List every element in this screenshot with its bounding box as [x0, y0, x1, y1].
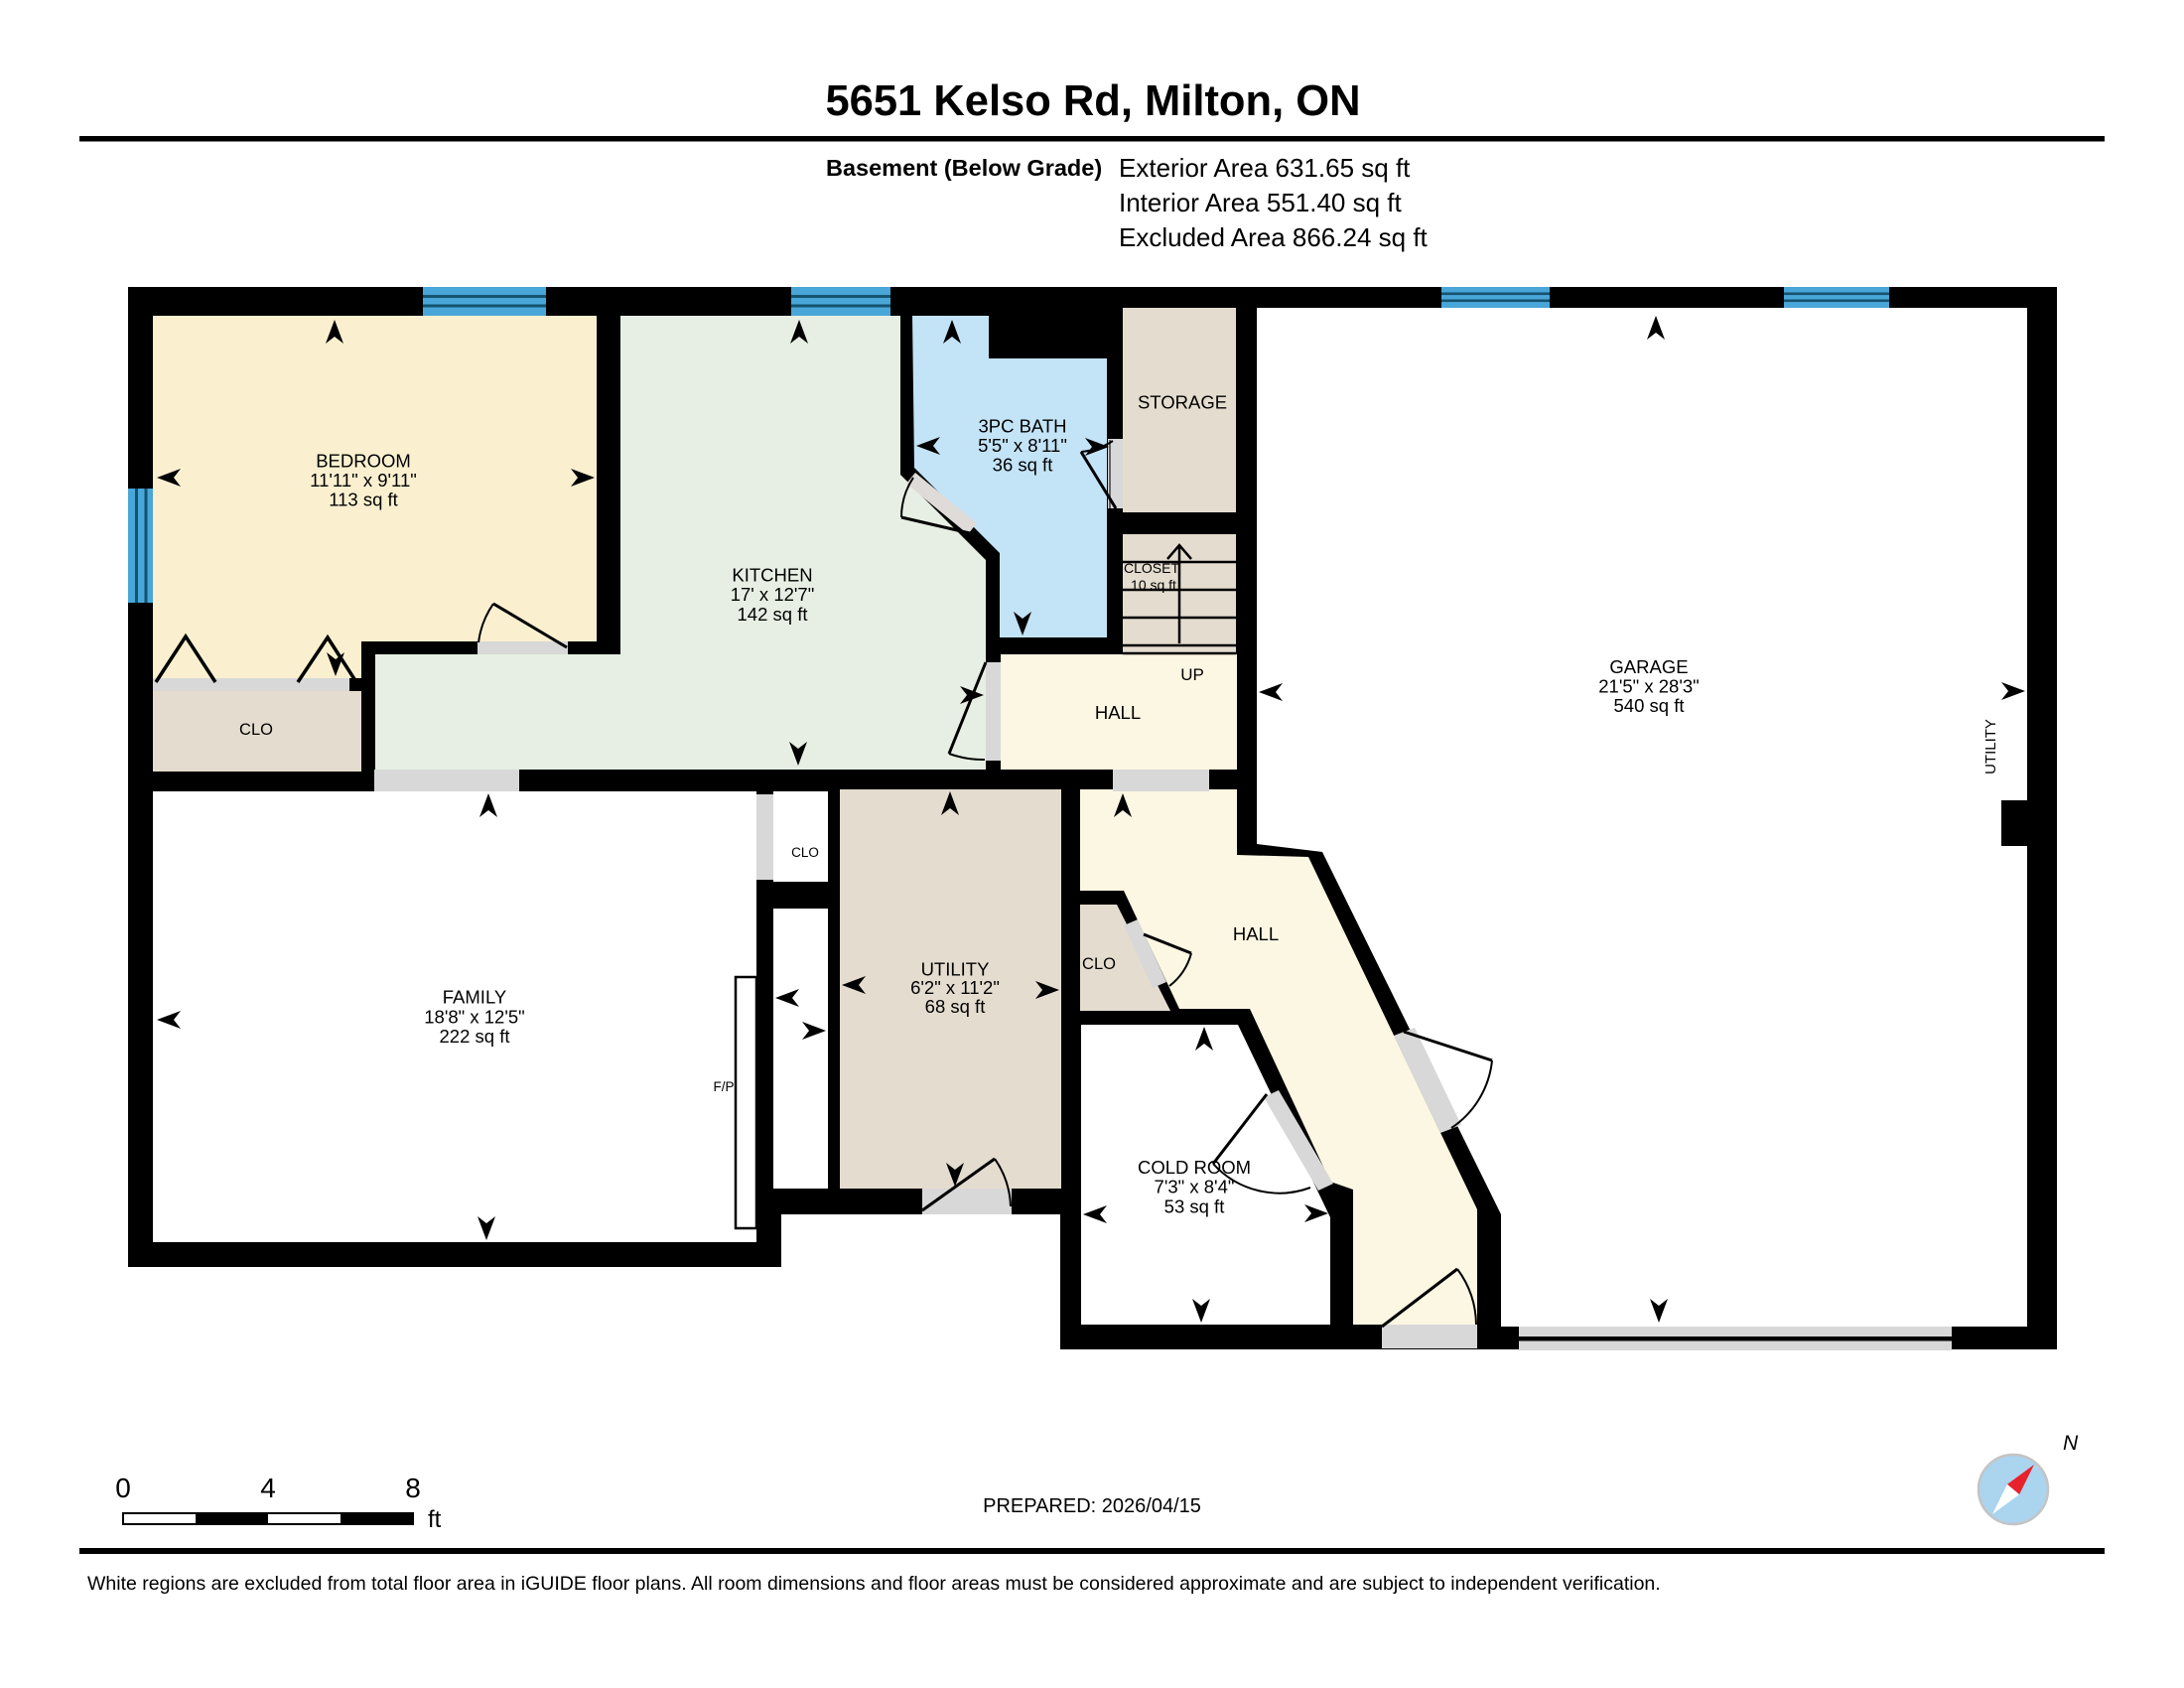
- svg-text:53 sq ft: 53 sq ft: [1164, 1196, 1225, 1216]
- svg-text:5'5" x 8'11": 5'5" x 8'11": [978, 435, 1067, 456]
- svg-text:STORAGE: STORAGE: [1138, 392, 1227, 413]
- svg-text:N: N: [2063, 1432, 2079, 1455]
- svg-text:CLO: CLO: [1082, 955, 1116, 973]
- svg-text:540 sq ft: 540 sq ft: [1614, 695, 1685, 716]
- svg-text:PREPARED: 2026/04/15: PREPARED: 2026/04/15: [983, 1495, 1201, 1517]
- svg-text:0: 0: [115, 1473, 131, 1503]
- svg-text:68 sq ft: 68 sq ft: [925, 996, 986, 1017]
- svg-text:UTILITY: UTILITY: [1982, 719, 1999, 774]
- svg-text:KITCHEN: KITCHEN: [732, 565, 812, 586]
- svg-text:8: 8: [405, 1473, 421, 1503]
- svg-text:Exterior Area 631.65 sq ft: Exterior Area 631.65 sq ft: [1119, 153, 1411, 183]
- svg-text:HALL: HALL: [1233, 923, 1279, 944]
- svg-text:11'11" x 9'11": 11'11" x 9'11": [310, 470, 417, 491]
- svg-text:ft: ft: [428, 1506, 442, 1533]
- svg-text:Interior Area 551.40 sq ft: Interior Area 551.40 sq ft: [1119, 188, 1403, 217]
- svg-text:HALL: HALL: [1095, 702, 1141, 723]
- svg-text:3PC BATH: 3PC BATH: [978, 415, 1066, 436]
- svg-text:White regions are excluded fro: White regions are excluded from total fl…: [87, 1573, 1661, 1595]
- svg-text:222 sq ft: 222 sq ft: [440, 1026, 510, 1047]
- svg-text:CLO: CLO: [239, 721, 273, 739]
- svg-text:COLD ROOM: COLD ROOM: [1138, 1157, 1251, 1178]
- svg-text:7'3" x 8'4": 7'3" x 8'4": [1155, 1177, 1235, 1197]
- svg-text:FAMILY: FAMILY: [443, 987, 506, 1008]
- svg-text:CLO: CLO: [791, 845, 819, 860]
- svg-text:UP: UP: [1180, 665, 1204, 684]
- svg-text:5651 Kelso Rd, Milton, ON: 5651 Kelso Rd, Milton, ON: [825, 77, 1360, 125]
- svg-text:F/P: F/P: [713, 1079, 734, 1094]
- svg-text:4: 4: [260, 1473, 276, 1503]
- svg-text:GARAGE: GARAGE: [1609, 656, 1688, 677]
- svg-text:36 sq ft: 36 sq ft: [993, 455, 1053, 476]
- svg-text:BEDROOM: BEDROOM: [316, 450, 411, 471]
- svg-text:113 sq ft: 113 sq ft: [329, 490, 398, 510]
- svg-text:21'5" x 28'3": 21'5" x 28'3": [1598, 676, 1699, 697]
- svg-text:142 sq ft: 142 sq ft: [738, 604, 808, 625]
- svg-text:Excluded Area 866.24 sq ft: Excluded Area 866.24 sq ft: [1119, 222, 1429, 252]
- svg-text:Basement (Below Grade): Basement (Below Grade): [826, 155, 1102, 181]
- svg-text:18'8" x 12'5": 18'8" x 12'5": [424, 1006, 524, 1027]
- svg-text:17' x 12'7": 17' x 12'7": [731, 584, 815, 605]
